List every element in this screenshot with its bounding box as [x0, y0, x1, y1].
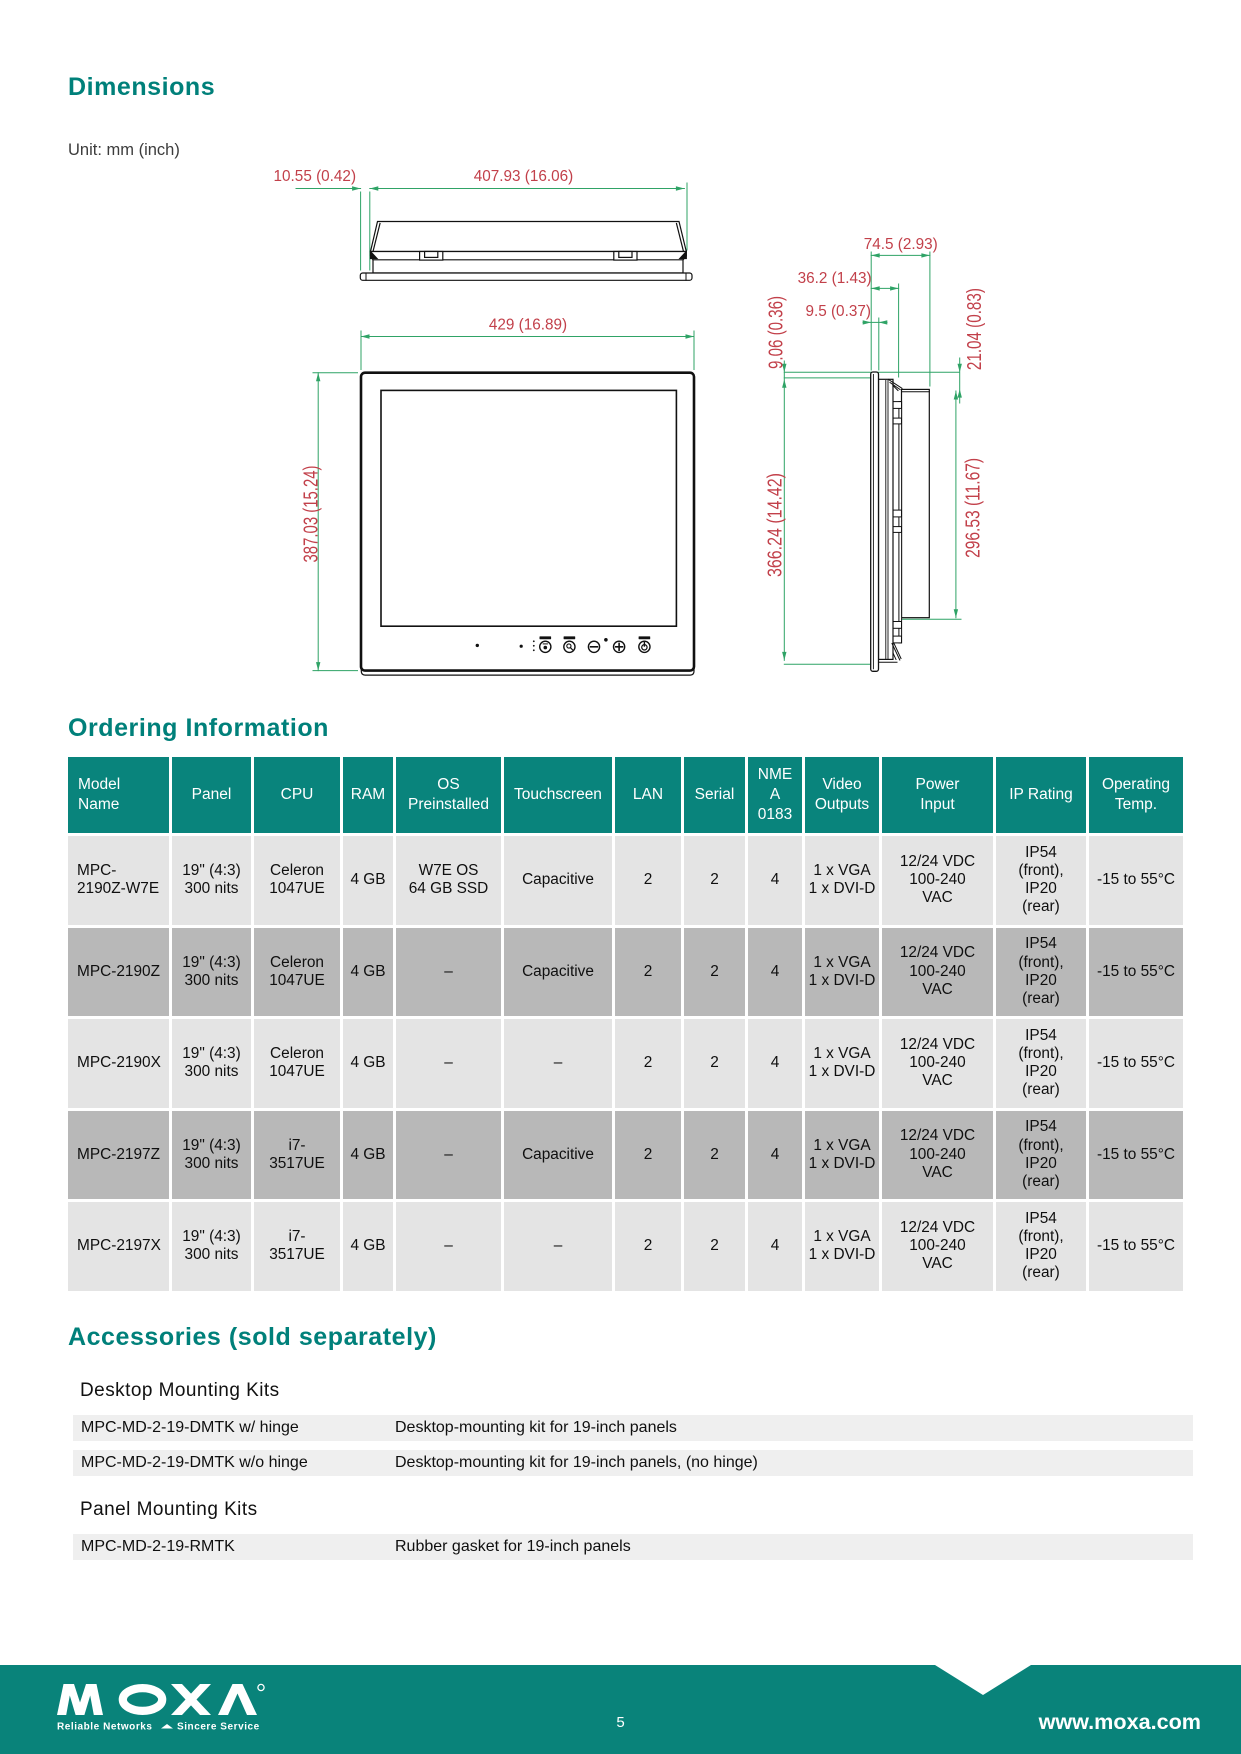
svg-text:Sincere Service: Sincere Service	[177, 1722, 260, 1733]
svg-text:366.24 (14.42): 366.24 (14.42)	[765, 473, 787, 577]
svg-text:21.04 (0.83): 21.04 (0.83)	[964, 288, 986, 370]
svg-text:9.06 (0.36): 9.06 (0.36)	[766, 296, 788, 369]
svg-text:407.93 (16.06): 407.93 (16.06)	[474, 168, 574, 185]
svg-text:429 (16.89): 429 (16.89)	[489, 317, 567, 334]
svg-text:Reliable Networks: Reliable Networks	[57, 1722, 153, 1733]
svg-text:9.5 (0.37): 9.5 (0.37)	[805, 303, 870, 320]
svg-text:296.53 (11.67): 296.53 (11.67)	[963, 458, 985, 558]
svg-text:10.55 (0.42): 10.55 (0.42)	[274, 168, 357, 185]
svg-text:387.03 (15.24): 387.03 (15.24)	[301, 466, 323, 563]
svg-text:36.2 (1.43): 36.2 (1.43)	[798, 270, 872, 287]
svg-text:74.5 (2.93): 74.5 (2.93)	[864, 236, 938, 253]
